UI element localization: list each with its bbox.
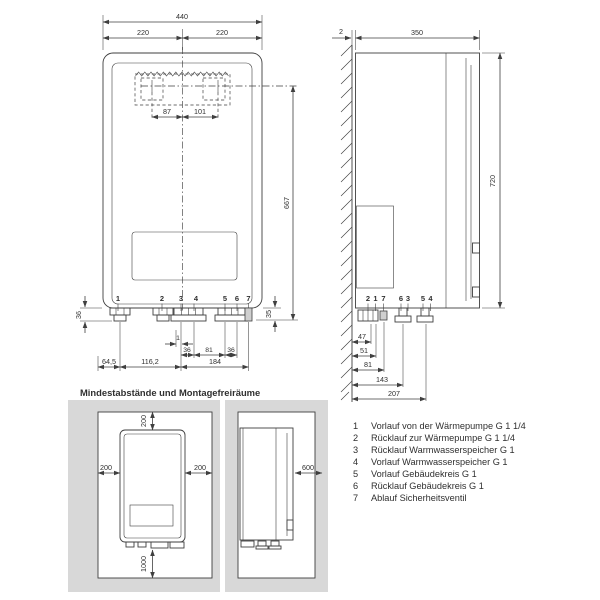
- svg-text:7: 7: [381, 294, 385, 303]
- front-conn-ticks: [118, 304, 249, 312]
- front-unit-inner-outline: [112, 63, 252, 304]
- dim-label-bottom-3: 184: [209, 357, 221, 366]
- clearance-side-room: [238, 412, 315, 578]
- front-bottom-dimensions: 1 36 81 36 64,5 116,2 184: [98, 322, 249, 371]
- pipe-7: [245, 308, 252, 321]
- dim-label-height: 667: [282, 197, 291, 209]
- svg-text:2: 2: [366, 294, 370, 303]
- connection-legend: 1 Vorlauf von der Wärmepumpe G 1 1/4 2 R…: [353, 421, 526, 503]
- front-conn-5: 5: [223, 294, 227, 303]
- dim-label-span-3: 36: [227, 347, 235, 354]
- dim-label-hole-right: 101: [194, 107, 206, 116]
- dim-label-clear-front: 600: [302, 463, 314, 472]
- legend-num-2: 2: [353, 433, 358, 443]
- pipe-1: [110, 308, 130, 315]
- template-hole-right: [203, 78, 225, 100]
- svg-text:3: 3: [406, 294, 410, 303]
- dim-label-pipe-right: 35: [264, 310, 273, 318]
- svg-text:1: 1: [373, 294, 377, 303]
- dim-label-row-47: 47: [358, 332, 366, 341]
- dim-label-bottom-1: 64,5: [102, 357, 116, 366]
- svg-text:4: 4: [428, 294, 433, 303]
- clearance-front-room: [98, 412, 212, 578]
- front-conn-3: 3: [179, 294, 183, 303]
- dim-label-row-207: 207: [388, 389, 400, 398]
- dim-label-clear-right: 200: [194, 463, 206, 472]
- dim-label-row-51: 51: [360, 346, 368, 355]
- front-conn-6: 6: [235, 294, 239, 303]
- legend-text-3: Rücklauf Warmwasserspeicher G 1: [371, 445, 515, 455]
- side-top-dimensions: 2 350: [332, 27, 480, 50]
- side-unit-outline: [356, 53, 480, 308]
- dim-label-row-81: 81: [364, 360, 372, 369]
- technical-drawing-page: 440 220 220 87 101 667 1 2 3 4 5 6 7: [0, 0, 600, 600]
- dim-label-row-143: 143: [376, 375, 388, 384]
- clearance-front-panel: 200 200 200 1000: [68, 400, 220, 592]
- dim-label-bottom-2: 116,2: [141, 357, 158, 366]
- dim-label-offset: 1: [176, 335, 180, 342]
- front-conn-7: 7: [246, 294, 250, 303]
- dim-label-span-2: 81: [205, 347, 213, 354]
- dim-label-total-width: 440: [176, 12, 188, 21]
- legend-num-7: 7: [353, 493, 358, 503]
- pipe-2: [153, 308, 173, 315]
- legend-num-6: 6: [353, 481, 358, 491]
- legend-text-4: Vorlauf Warmwasserspeicher G 1: [371, 457, 508, 467]
- legend-num-4: 4: [353, 457, 358, 467]
- side-pipe-connections: [358, 308, 433, 322]
- clearance-side-panel: 600: [225, 400, 328, 592]
- legend-text-7: Ablauf Sicherheitsventil: [371, 493, 467, 503]
- front-conn-2: 2: [160, 294, 164, 303]
- svg-text:6: 6: [399, 294, 403, 303]
- legend-text-5: Vorlauf Gebäudekreis G 1: [371, 469, 477, 479]
- dim-label-depth: 350: [411, 28, 423, 37]
- section-title: Mindestabstände und Montagefreiräume: [80, 387, 260, 398]
- dim-label-clear-top: 200: [139, 415, 148, 427]
- front-conn-4: 4: [194, 294, 199, 303]
- legend-text-6: Rücklauf Gebäudekreis G 1: [371, 481, 484, 491]
- wall-hatching: [341, 45, 352, 400]
- dim-label-wall-gap: 2: [339, 27, 343, 36]
- dim-label-clear-left: 200: [100, 463, 112, 472]
- mounting-template: [135, 72, 297, 120]
- side-bottom-dimensions: 47 51 81 143 207: [352, 322, 426, 401]
- dim-label-hole-left: 87: [163, 107, 171, 116]
- legend-text-1: Vorlauf von der Wärmepumpe G 1 1/4: [371, 421, 526, 431]
- front-display-panel: [132, 232, 237, 280]
- side-connection-labels: 2 1 7 6 3 5 4: [366, 294, 434, 311]
- front-conn-1: 1: [116, 294, 120, 303]
- side-view: 2 350 720 2 1 7 6 3 5 4: [332, 27, 505, 402]
- legend-text-2: Rücklauf zur Wärmepumpe G 1 1/4: [371, 433, 515, 443]
- side-mount-bracket: [357, 206, 394, 288]
- legend-num-5: 5: [353, 469, 358, 479]
- front-connection-labels: 1 2 3 4 5 6 7: [116, 294, 251, 311]
- legend-num-3: 3: [353, 445, 358, 455]
- dimension-drawing: 440 220 220 87 101 667 1 2 3 4 5 6 7: [0, 0, 600, 600]
- dim-label-width-right: 220: [216, 28, 228, 37]
- dim-label-width-left: 220: [137, 28, 149, 37]
- side-height-dimension: 720: [482, 53, 505, 308]
- front-view: 440 220 220 87 101 667 1 2 3 4 5 6 7: [74, 12, 298, 371]
- dim-label-span-1: 36: [183, 347, 191, 354]
- dim-label-clear-bottom: 1000: [139, 556, 148, 572]
- front-cover-notch-upper: [473, 243, 480, 253]
- dim-label-side-height: 720: [488, 175, 497, 187]
- svg-text:5: 5: [421, 294, 425, 303]
- front-cover-notch-lower: [473, 287, 480, 297]
- dim-label-pipe-left: 36: [74, 311, 83, 319]
- legend-num-1: 1: [353, 421, 358, 431]
